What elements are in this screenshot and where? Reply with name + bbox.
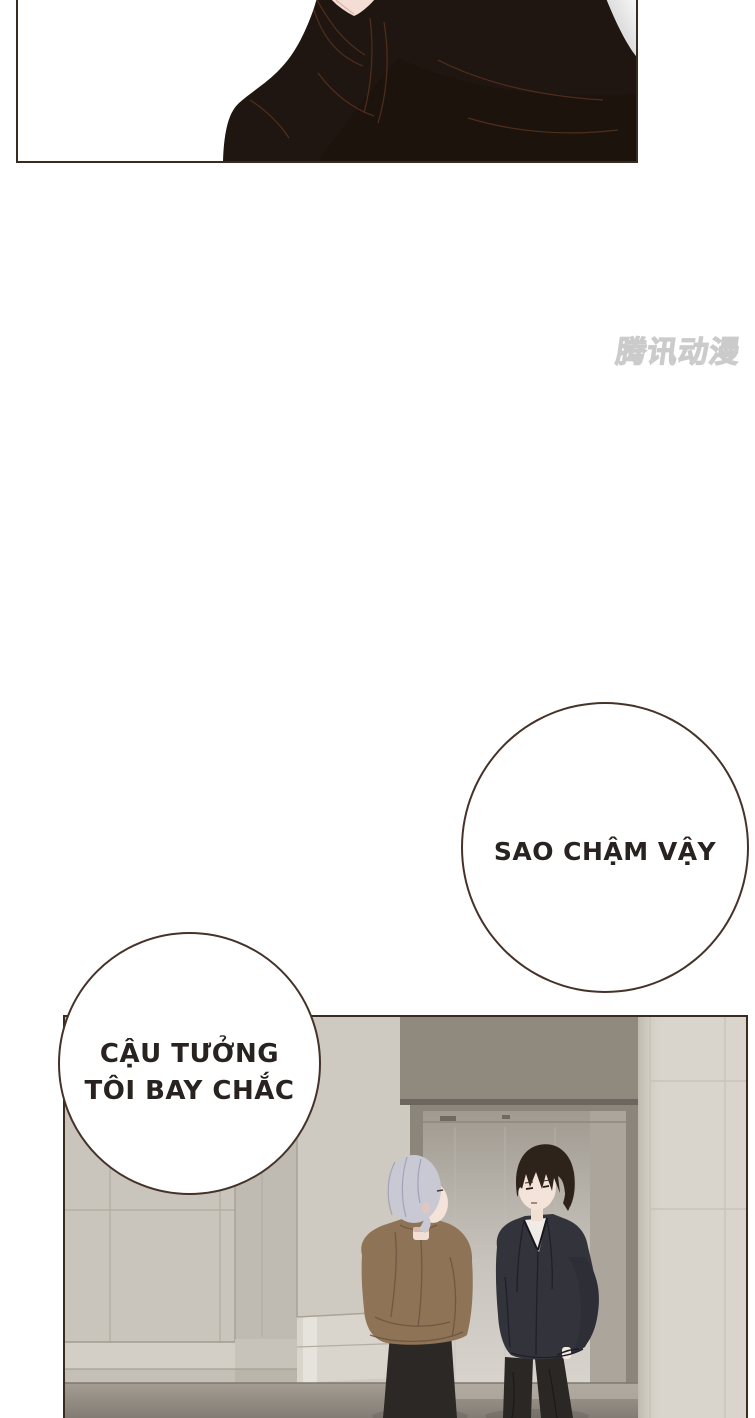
right-pillar-shade	[638, 1017, 664, 1418]
right-character-neck	[531, 1209, 543, 1221]
left-character-ear	[422, 1202, 430, 1214]
speech-bubble-2-line-2: TÔI BAY CHẮC	[85, 1073, 295, 1110]
door-lintel-shadow	[400, 1099, 638, 1105]
doorway-inner-right	[590, 1111, 626, 1387]
left-character-eye	[437, 1190, 443, 1191]
character-silhouette-illustration	[18, 0, 636, 161]
right-character-hand	[562, 1347, 571, 1359]
speech-bubble-2-text: CẬU TƯỞNG TÔI BAY CHẮC	[85, 1036, 295, 1110]
left-character-hair	[387, 1155, 441, 1223]
door-lintel	[400, 1017, 638, 1099]
left-character-pants	[383, 1333, 457, 1418]
speech-bubble-1: SAO CHẬM VẬY	[461, 702, 749, 993]
top-comic-panel	[16, 0, 638, 163]
door-hardware-2	[502, 1115, 510, 1119]
door-hardware	[440, 1116, 456, 1121]
tencent-comics-watermark: 腾讯动漫	[613, 333, 755, 375]
speech-bubble-2-line-1: CẬU TƯỞNG	[85, 1036, 295, 1073]
comic-page: 腾讯动漫	[0, 0, 755, 1418]
speech-bubble-2: CẬU TƯỞNG TÔI BAY CHẮC	[58, 932, 321, 1195]
right-character-pants-left-leg	[503, 1357, 533, 1418]
speech-bubble-1-text: SAO CHẬM VẬY	[494, 837, 716, 866]
